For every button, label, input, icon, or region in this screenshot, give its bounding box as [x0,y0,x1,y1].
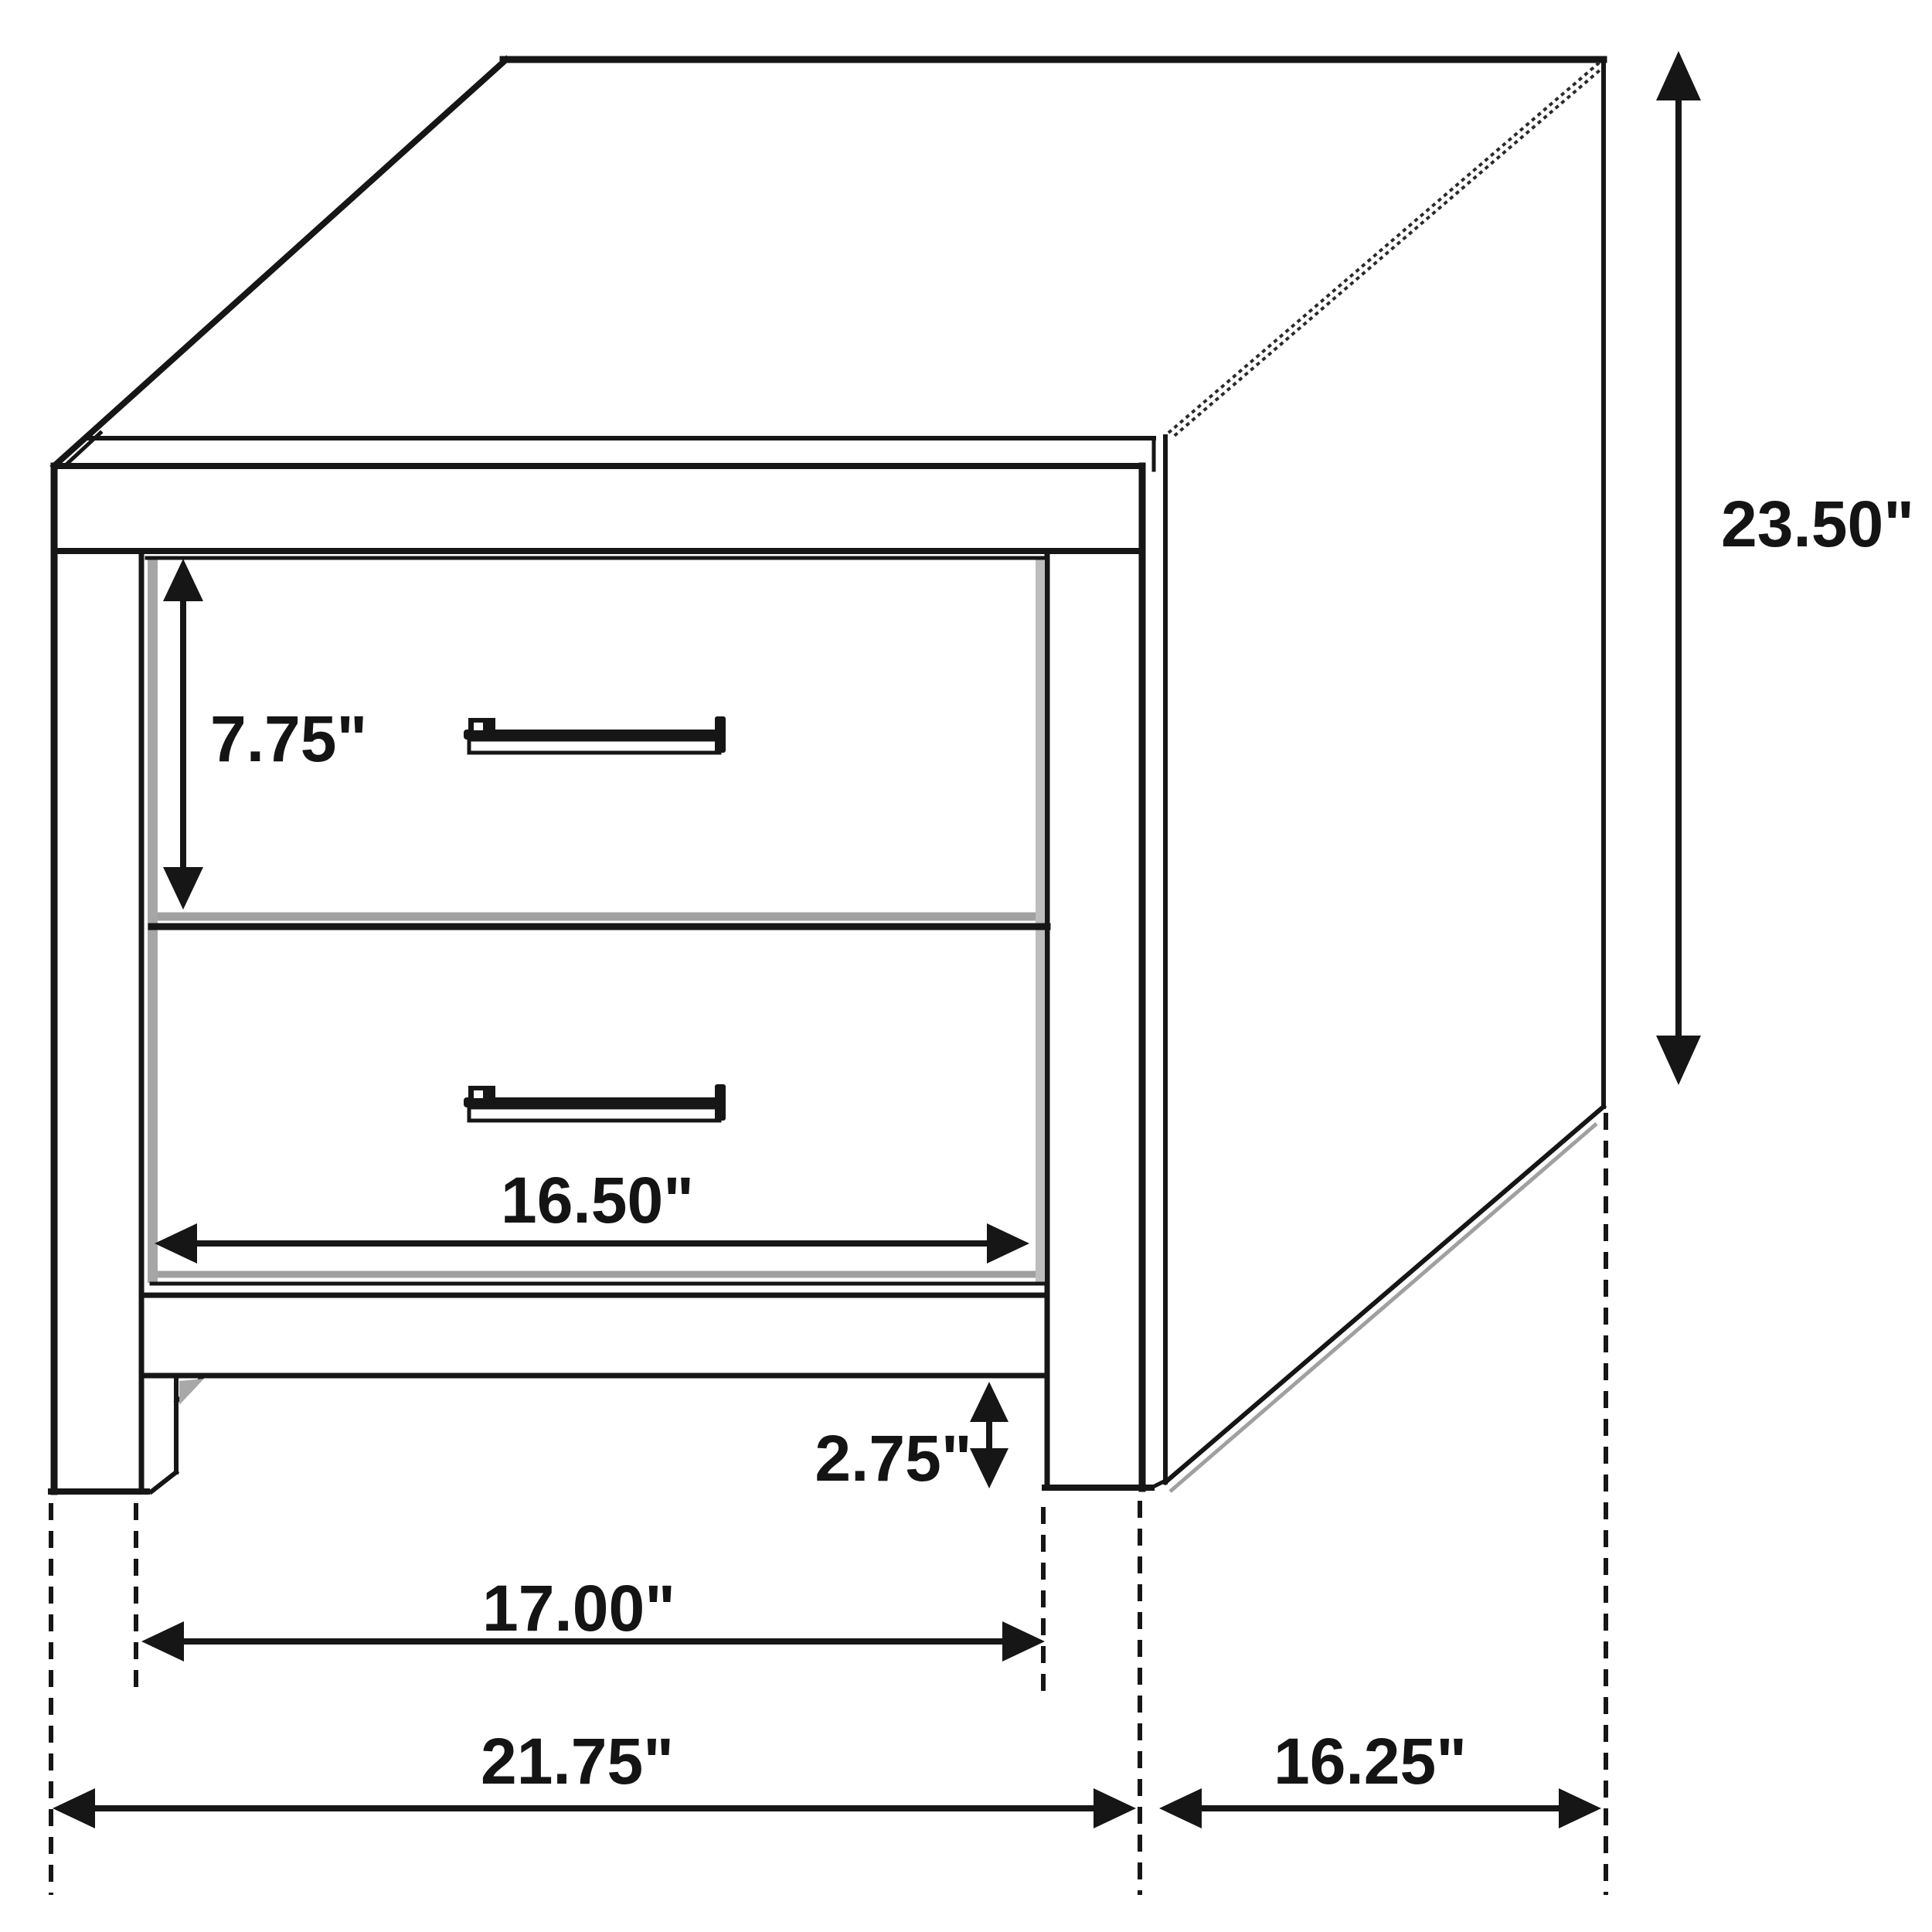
drawer-1-handle [464,716,726,753]
diagram-canvas: 7.75" 23.50" 16.50" 2.75" 17.00" 21.75" … [0,0,1932,1932]
opening-left-shadow [148,558,158,1283]
top-right-hatched-edge [1168,60,1605,438]
dim-label-drawer-width: 16.50" [501,1164,694,1236]
dim-label-depth: 16.25" [1274,1725,1467,1798]
dim-arrow-drawer-height [163,559,203,910]
top-left-diagonal-edge [54,60,506,466]
cabinet-top-surface [54,60,1605,470]
nightstand-line-drawing: 7.75" 23.50" 16.50" 2.75" 17.00" 21.75" … [0,0,1932,1932]
dim-arrow-overall-height [1656,51,1701,1085]
dim-label-overall-height: 23.50" [1721,488,1914,560]
cabinet-side-panel [1165,60,1604,1492]
side-bottom-diagonal-edge [1165,1107,1604,1482]
dim-label-overall-width: 21.75" [481,1725,674,1798]
side-bottom-shadow [1170,1124,1597,1492]
opening-right-shadow [1036,558,1045,1283]
left-foot-cleat [151,1377,204,1492]
dim-label-leg-height: 2.75" [815,1422,971,1495]
dim-label-inner-width: 17.00" [482,1572,675,1645]
dim-label-drawer-height: 7.75" [210,702,367,775]
dim-arrow-leg-height [970,1382,1009,1488]
cleat-shadow-wedge [179,1379,204,1405]
cabinet-front-frame [51,466,1165,1492]
drawer-2-handle [464,1084,726,1121]
